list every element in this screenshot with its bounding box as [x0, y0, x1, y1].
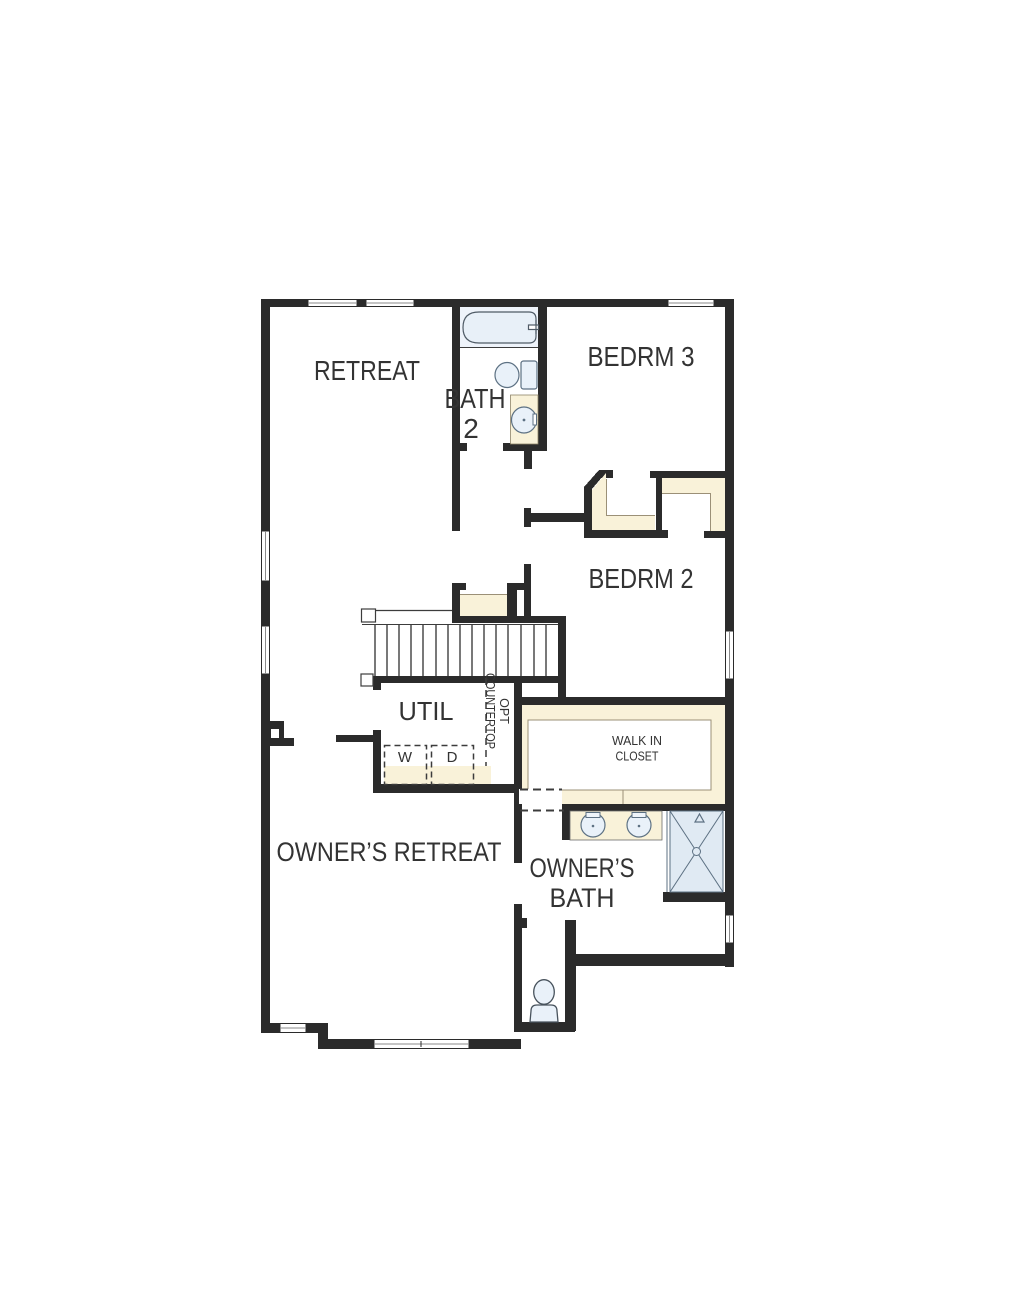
svg-text:BATH: BATH	[445, 383, 506, 414]
svg-text:W: W	[398, 749, 413, 766]
svg-text:OPTCOUNTERTOP: OPTCOUNTERTOP	[483, 673, 511, 749]
svg-text:OWNER’S RETREAT: OWNER’S RETREAT	[277, 837, 502, 867]
svg-text:UTIL: UTIL	[399, 696, 454, 726]
svg-text:BATH: BATH	[550, 883, 615, 913]
svg-text:2: 2	[463, 413, 479, 444]
svg-text:BEDRM 2: BEDRM 2	[589, 563, 694, 594]
svg-text:BEDRM 3: BEDRM 3	[588, 341, 695, 372]
svg-text:CLOSET: CLOSET	[616, 749, 659, 764]
svg-text:RETREAT: RETREAT	[314, 355, 420, 386]
svg-text:OWNER’S: OWNER’S	[530, 853, 635, 883]
svg-text:WALK IN: WALK IN	[612, 733, 662, 748]
svg-text:D: D	[447, 749, 458, 766]
